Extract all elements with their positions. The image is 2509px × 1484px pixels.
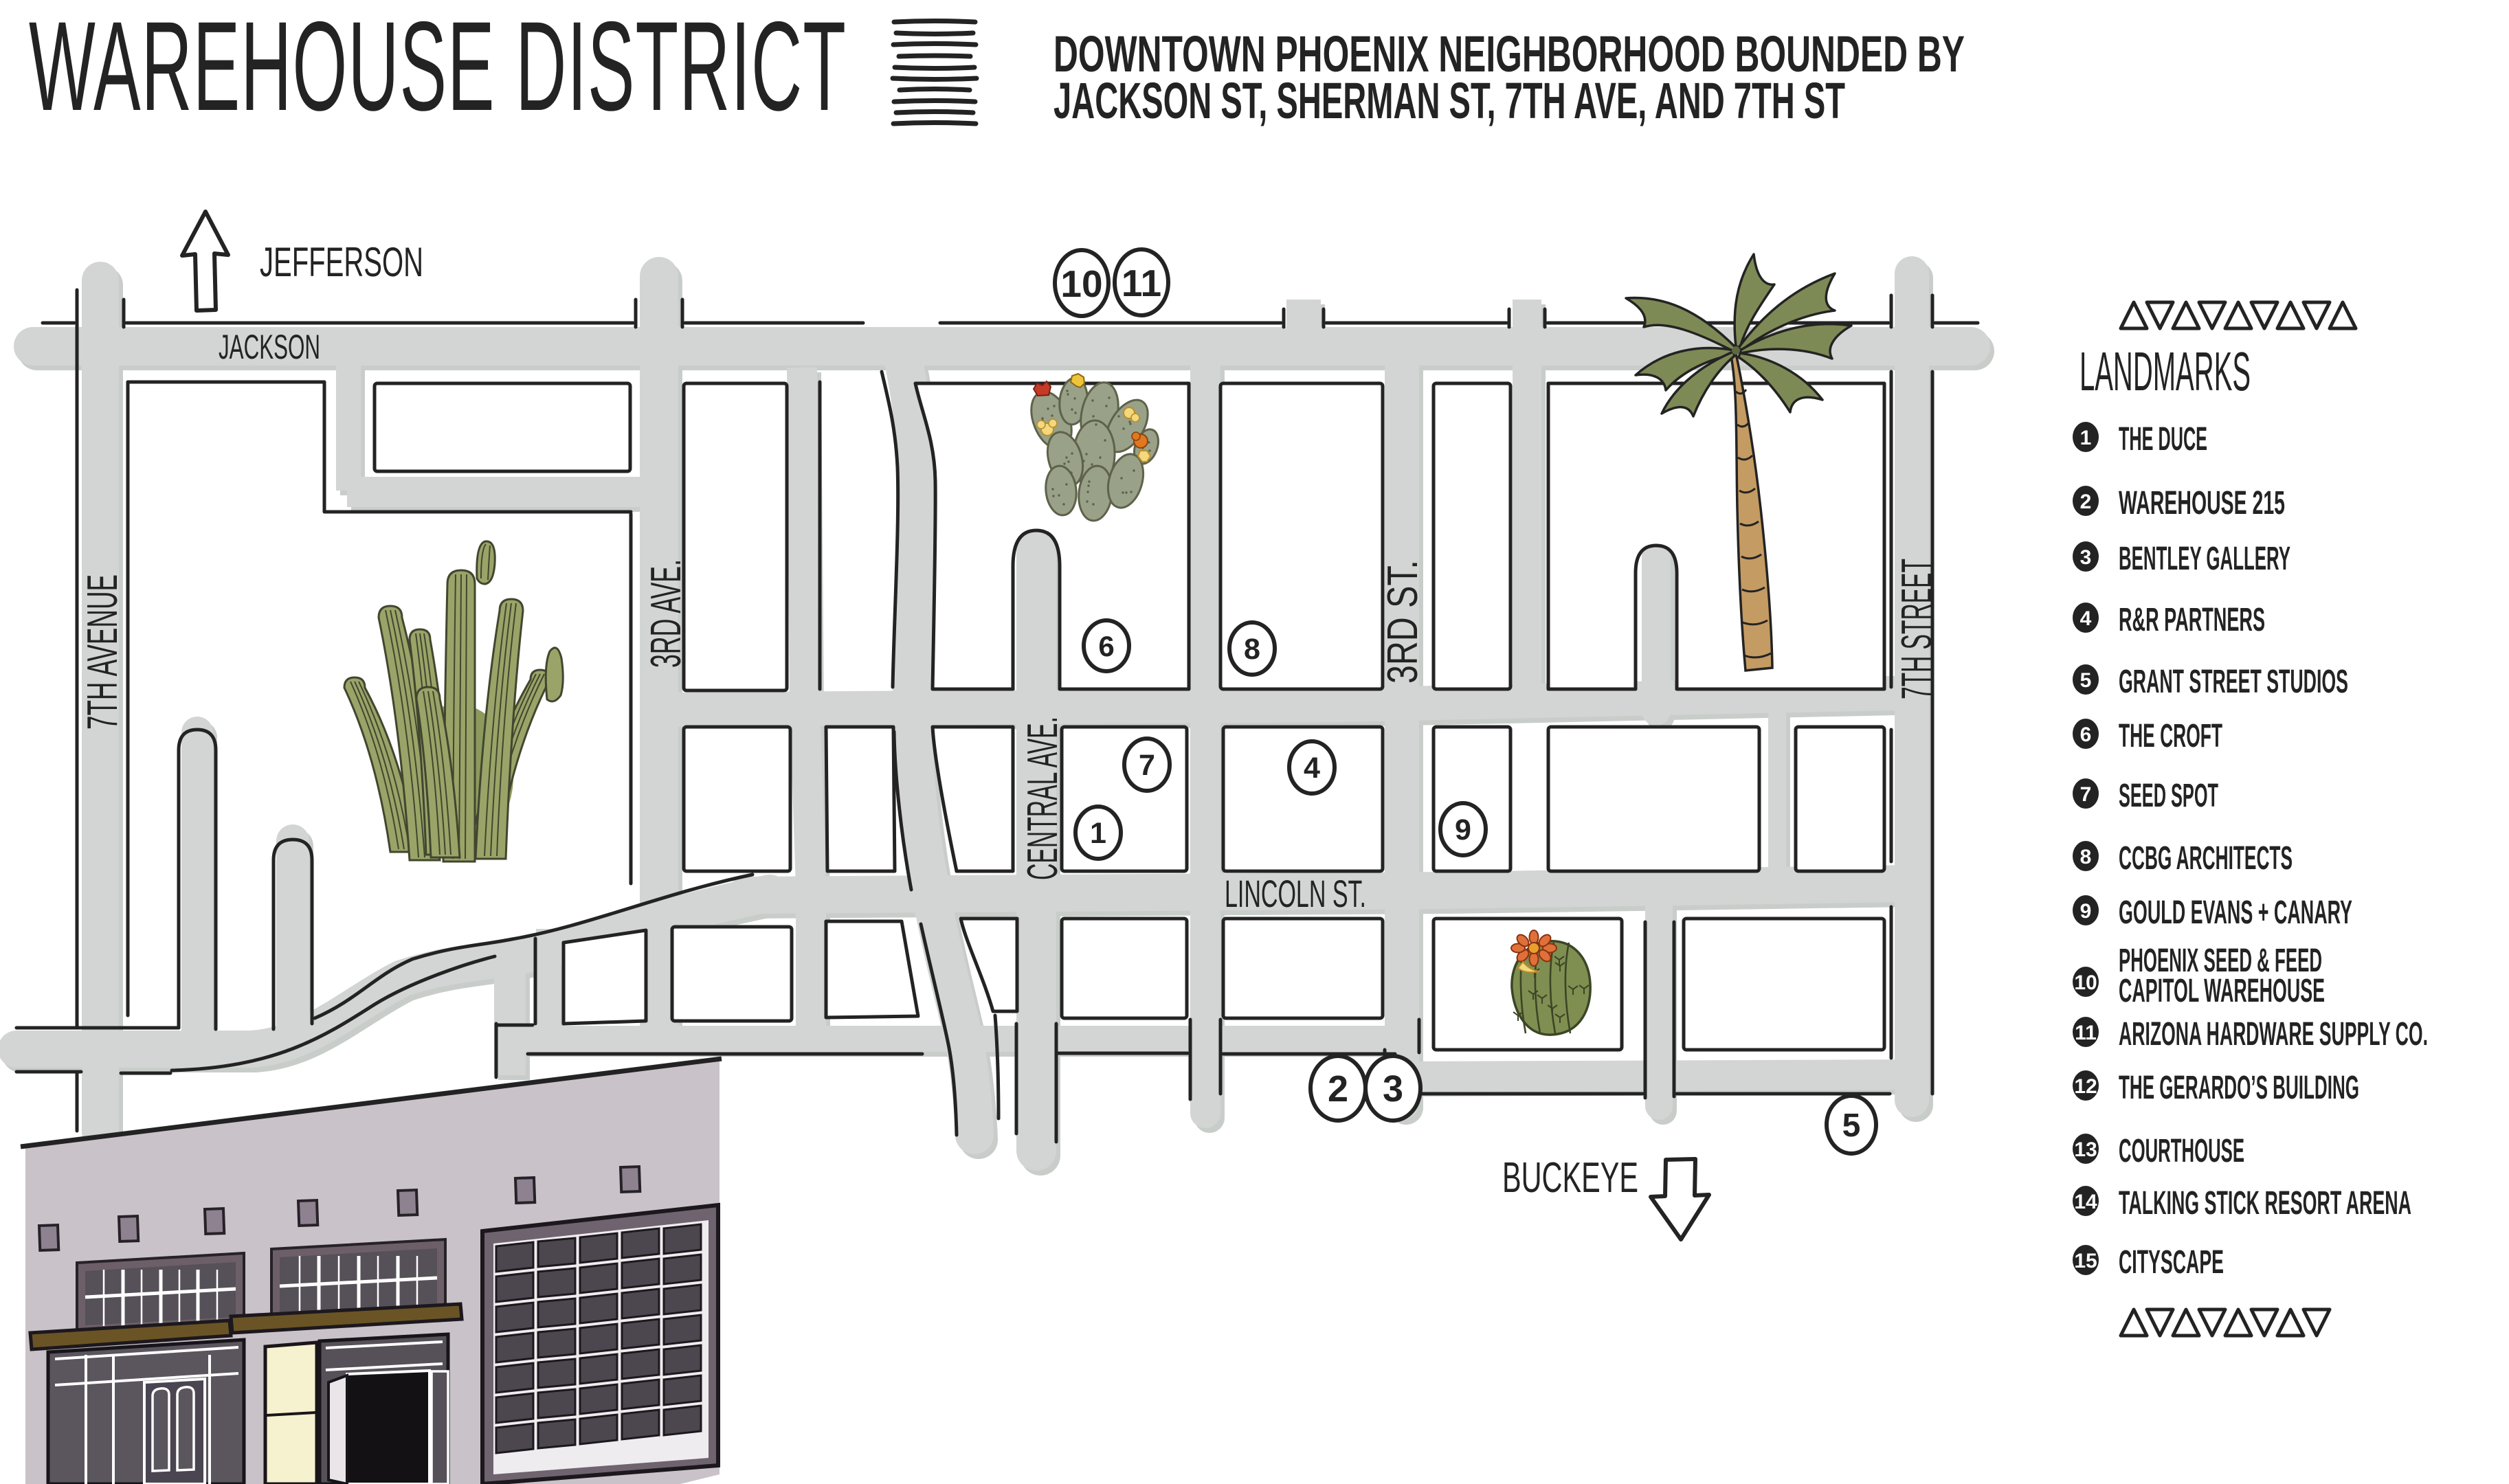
svg-text:5: 5	[2080, 669, 2092, 692]
svg-text:CAPITOL WAREHOUSE: CAPITOL WAREHOUSE	[2119, 973, 2325, 1009]
svg-text:4: 4	[1304, 752, 1320, 785]
svg-text:LANDMARKS: LANDMARKS	[2079, 341, 2251, 402]
svg-text:11: 11	[1122, 262, 1161, 304]
svg-text:WAREHOUSE DISTRICT: WAREHOUSE DISTRICT	[29, 0, 847, 137]
svg-text:JACKSON: JACKSON	[219, 328, 320, 366]
svg-text:7: 7	[2080, 783, 2092, 806]
svg-text:14: 14	[2074, 1191, 2097, 1213]
svg-text:3: 3	[1383, 1068, 1403, 1110]
svg-text:12: 12	[2074, 1075, 2097, 1098]
svg-text:THE GERARDO’S BUILDING: THE GERARDO’S BUILDING	[2119, 1070, 2359, 1106]
svg-text:R&R PARTNERS: R&R PARTNERS	[2119, 602, 2265, 638]
svg-text:JACKSON ST, SHERMAN ST, 7TH AV: JACKSON ST, SHERMAN ST, 7TH AVE, AND 7TH…	[1053, 72, 1845, 129]
svg-text:THE CROFT: THE CROFT	[2119, 718, 2222, 754]
svg-text:BUCKEYE: BUCKEYE	[1502, 1154, 1638, 1202]
svg-text:6: 6	[1098, 630, 1114, 662]
svg-text:8: 8	[1244, 633, 1260, 666]
svg-text:1: 1	[2080, 427, 2092, 449]
svg-text:CCBG ARCHITECTS: CCBG ARCHITECTS	[2119, 840, 2293, 877]
svg-text:8: 8	[2080, 846, 2092, 868]
svg-text:BENTLEY GALLERY: BENTLEY GALLERY	[2119, 541, 2290, 577]
svg-text:13: 13	[2074, 1138, 2097, 1161]
svg-text:7TH STREET: 7TH STREET	[1893, 559, 1941, 699]
svg-text:2: 2	[2080, 491, 2092, 513]
svg-text:15: 15	[2074, 1250, 2097, 1272]
svg-text:CENTRAL AVE.: CENTRAL AVE.	[1019, 717, 1067, 880]
svg-text:9: 9	[2080, 900, 2092, 923]
svg-text:GRANT STREET STUDIOS: GRANT STREET STUDIOS	[2119, 664, 2348, 700]
svg-text:SEED SPOT: SEED SPOT	[2119, 778, 2218, 814]
svg-text:WAREHOUSE 215: WAREHOUSE 215	[2119, 485, 2285, 521]
svg-text:10: 10	[1060, 262, 1102, 305]
svg-text:2: 2	[1328, 1068, 1348, 1110]
svg-text:COURTHOUSE: COURTHOUSE	[2119, 1133, 2244, 1169]
svg-text:3RD AVE.: 3RD AVE.	[643, 559, 690, 668]
svg-text:ARIZONA HARDWARE SUPPLY CO.: ARIZONA HARDWARE SUPPLY CO.	[2119, 1016, 2428, 1053]
svg-text:10: 10	[2074, 971, 2097, 994]
svg-text:9: 9	[1455, 813, 1471, 846]
svg-text:1: 1	[1090, 817, 1106, 850]
svg-text:CITYSCAPE: CITYSCAPE	[2119, 1244, 2224, 1281]
svg-text:3: 3	[2080, 546, 2092, 569]
svg-text:7: 7	[1139, 749, 1155, 782]
svg-text:5: 5	[1842, 1108, 1861, 1144]
svg-text:11: 11	[2075, 1022, 2097, 1044]
svg-text:6: 6	[2080, 723, 2092, 746]
svg-text:THE DUCE: THE DUCE	[2119, 421, 2207, 458]
svg-text:3RD ST.: 3RD ST.	[1379, 560, 1427, 684]
svg-text:TALKING STICK RESORT ARENA: TALKING STICK RESORT ARENA	[2119, 1185, 2411, 1222]
svg-text:LINCOLN ST.: LINCOLN ST.	[1225, 872, 1366, 915]
svg-text:JEFFERSON: JEFFERSON	[260, 239, 423, 285]
svg-text:GOULD EVANS + CANARY: GOULD EVANS + CANARY	[2119, 895, 2352, 931]
svg-text:4: 4	[2080, 607, 2092, 630]
svg-text:7TH AVENUE: 7TH AVENUE	[79, 574, 126, 730]
